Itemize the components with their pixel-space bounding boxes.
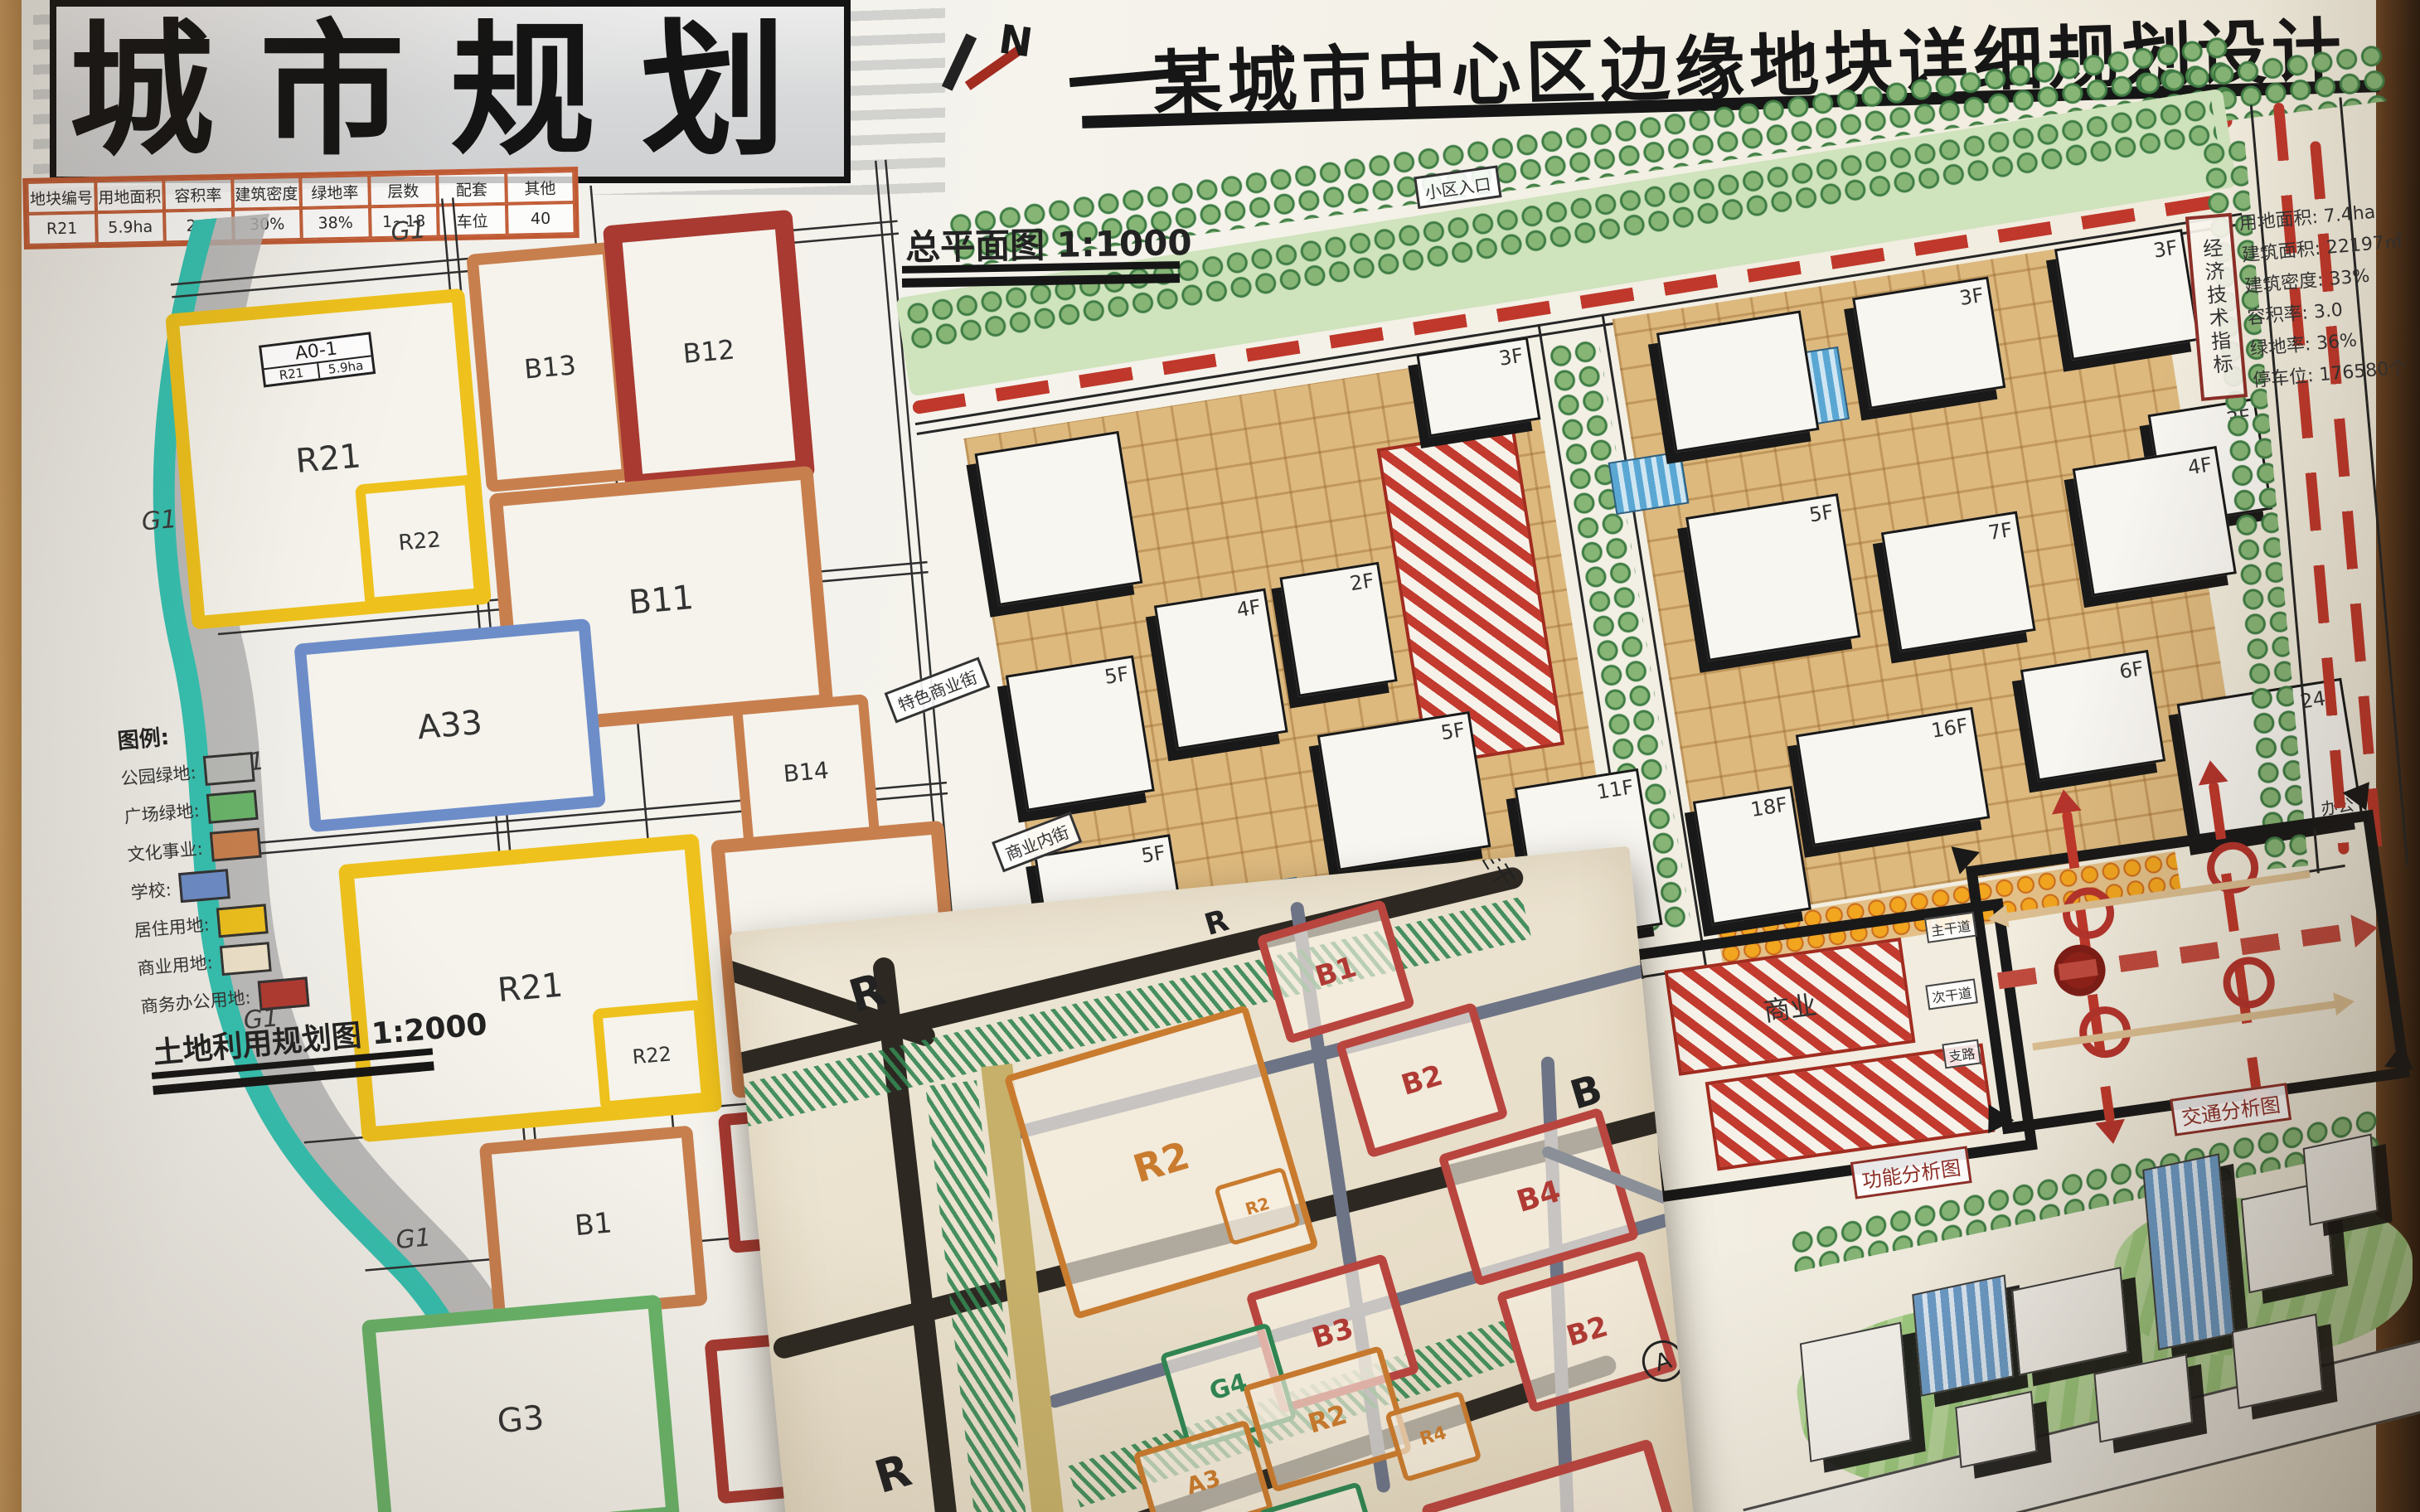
legend-item: 商务办公用地: xyxy=(139,976,319,1021)
plot-label: B2 xyxy=(1398,1059,1447,1102)
legend-swatch xyxy=(206,790,259,824)
stat-value: 22197㎡ xyxy=(2325,231,2403,259)
legend-swatch xyxy=(220,942,272,976)
plot-label: B3 xyxy=(1308,1311,1357,1354)
stats-panel: 经济技术指标 用地面积: 7.4ha 建筑面积: 22197㎡ 建筑密度: 33… xyxy=(2185,190,2418,464)
g1-label: G1 xyxy=(140,505,177,537)
floor-label: 3F xyxy=(1497,344,1525,371)
stats-title: 经济技术指标 xyxy=(2196,236,2238,377)
overlay-content: R2 R2 B1 B2 B4 B3 G4 R2 A3 R4 G5 B2 B1 B… xyxy=(730,846,1709,1512)
arrowhead-icon xyxy=(2049,787,2082,815)
stat-label: 用地面积: xyxy=(2238,207,2319,235)
stat-value: 7.4ha xyxy=(2323,202,2376,227)
legend-item: 商业用地: xyxy=(136,938,316,983)
plot-label: B1 xyxy=(574,1206,613,1243)
plot-R22b: R22 xyxy=(592,1000,711,1112)
plot-G3: G3 xyxy=(361,1295,680,1512)
legend-item: 学校: xyxy=(129,862,309,908)
g1-label: G1 xyxy=(390,215,427,247)
floor-label: 6F xyxy=(2117,657,2145,683)
floor-label: 5F xyxy=(1140,841,1167,867)
g1-label: G1 xyxy=(395,1223,432,1255)
building-block: 7F xyxy=(1881,511,2036,652)
stat-label: 停车位: xyxy=(2252,366,2314,391)
plot-label: R4 xyxy=(1418,1422,1449,1450)
plot-label: B4 xyxy=(1513,1175,1564,1219)
road-letter: B xyxy=(1565,1066,1608,1119)
table-header: 建筑密度 xyxy=(232,177,301,210)
legend-label: 广场绿地: xyxy=(123,797,200,829)
floor-label: 3F xyxy=(2151,236,2179,263)
axon-building xyxy=(2093,1354,2193,1443)
building-block: 6F xyxy=(2020,650,2165,782)
overlay-sketch-photo: R2 R2 B1 B2 B4 B3 G4 R2 A3 R4 G5 B2 B1 B… xyxy=(730,846,1709,1512)
stat-label: 建筑密度: xyxy=(2243,269,2324,297)
legend-swatch xyxy=(203,752,255,786)
table-header: 绿地率 xyxy=(300,175,369,208)
legend-item: 广场绿地: xyxy=(123,786,303,831)
plot-label: B2 xyxy=(1563,1310,1612,1353)
plot-A33: A33 xyxy=(293,618,606,832)
stat-label: 绿地率: xyxy=(2249,334,2311,360)
axon-tower-glass xyxy=(2142,1153,2235,1350)
sketch-plot: B2 xyxy=(1496,1250,1679,1413)
planning-board-photo: 城市规划 地块编号 用地面积 容积率 建筑密度 绿地率 层数 配套 其他 R21… xyxy=(0,0,2420,1512)
road-level-label: 支路 xyxy=(1942,1039,1981,1069)
arrowhead-icon xyxy=(1986,904,2010,930)
legend-label: 公园绿地: xyxy=(119,759,196,791)
plot-label: B11 xyxy=(627,579,695,623)
stats-list: 用地面积: 7.4ha 建筑面积: 22197㎡ 建筑密度: 33% 容积率: … xyxy=(2238,190,2416,397)
building-block: 5F xyxy=(1317,711,1491,871)
floor-label: 5F xyxy=(1439,718,1467,744)
plot-B12: B12 xyxy=(603,210,815,494)
plot-label: B1 xyxy=(1312,950,1360,993)
legend-label: 商业用地: xyxy=(136,949,213,981)
floor-label: 2F xyxy=(1348,569,1375,595)
legend-label: 学校: xyxy=(129,876,172,904)
axon-building xyxy=(2011,1267,2128,1376)
axon-building xyxy=(2303,1133,2379,1225)
sketch-plot: B1 xyxy=(1256,899,1415,1044)
table-header: 容积率 xyxy=(163,178,232,211)
plot-label: R22 xyxy=(397,527,442,555)
plot-label: R21 xyxy=(496,966,564,1010)
plot-label: R2 xyxy=(1304,1398,1351,1440)
axon-building xyxy=(2232,1314,2324,1409)
axon-sketch xyxy=(1766,1173,2420,1512)
floor-label: 18F xyxy=(1749,792,1789,821)
legend-swatch xyxy=(216,904,269,938)
plot-R22: R22 xyxy=(355,474,484,608)
stat-value: 3.0 xyxy=(2313,300,2344,323)
stat-value: 36% xyxy=(2316,330,2358,354)
plot-label: R22 xyxy=(632,1042,672,1069)
sketch-plot: B2 xyxy=(1336,1002,1509,1159)
plot-label: R21 xyxy=(294,437,362,481)
stat-value: 176580个 xyxy=(2318,357,2408,385)
art-title-block: 城市规划 xyxy=(50,0,851,183)
table-header: 用地面积 xyxy=(95,179,164,212)
legend-label: 商务办公用地: xyxy=(139,984,251,1018)
plot-label: B13 xyxy=(523,349,578,385)
legend-swatch xyxy=(178,869,230,903)
plot-label: R2 xyxy=(1243,1194,1272,1219)
axon-buildings xyxy=(1791,1119,2403,1512)
plot-B14: B14 xyxy=(732,694,880,850)
building-block: 5F xyxy=(1685,493,1860,661)
plot-label: B12 xyxy=(681,333,736,369)
legend-label: 居住用地: xyxy=(133,911,210,943)
building-block: 3F xyxy=(1416,337,1540,437)
arrowhead-icon xyxy=(2195,758,2228,786)
floor-label: 7F xyxy=(1986,518,2014,545)
legend-item: 文化事业: xyxy=(126,824,306,870)
traffic-diagram: 主干道 次干道 支路 交通分析图 xyxy=(1926,756,2420,1175)
plot-label: A33 xyxy=(416,704,484,748)
arrowhead-icon xyxy=(2333,990,2356,1015)
legend: 图例: 公园绿地: 广场绿地: 文化事业: 学校: 居住用地: 商业用地: 商务… xyxy=(116,709,320,1029)
building-block: 4F xyxy=(1154,589,1288,750)
floor-label: 4F xyxy=(1235,595,1263,622)
building-block: 4F xyxy=(2073,446,2237,597)
building-block: 3F xyxy=(1852,276,2005,409)
floor-label: 3F xyxy=(1958,283,1986,310)
north-label: N xyxy=(996,16,1035,66)
axon-building xyxy=(1955,1391,2037,1468)
plot-B1b: B1 xyxy=(479,1125,708,1324)
building-block: 3F xyxy=(2054,229,2199,361)
plot-label: B14 xyxy=(782,756,830,787)
legend-item: 居住用地: xyxy=(133,900,313,946)
legend-swatch xyxy=(210,828,262,862)
stat-label: 建筑面积: xyxy=(2241,239,2321,266)
arrowhead-icon xyxy=(2095,1119,2128,1146)
arrowhead-icon xyxy=(2342,773,2381,811)
road-letter: R xyxy=(869,1444,917,1504)
building-block xyxy=(974,431,1142,606)
zone-label: 商业 xyxy=(1761,984,1819,1029)
building-block: 2F xyxy=(1279,562,1397,697)
floor-label: 11F xyxy=(1595,775,1635,804)
plot-label: R2 xyxy=(1128,1132,1195,1191)
stat-value: 33% xyxy=(2328,266,2370,290)
floor-label: 5F xyxy=(1103,662,1130,689)
stat-label: 容积率: xyxy=(2247,303,2309,328)
axon-building xyxy=(1800,1322,1912,1462)
table-header: 地块编号 xyxy=(27,181,95,214)
building-block xyxy=(1656,310,1820,453)
legend-label: 文化事业: xyxy=(126,836,203,867)
arrowhead-icon xyxy=(2350,911,2379,947)
floor-label: 5F xyxy=(1807,500,1835,526)
art-title-text: 城市规划 xyxy=(69,19,832,164)
axon-building-glass xyxy=(1912,1275,2014,1397)
road-letter: R xyxy=(1200,904,1232,943)
legend-item: 公园绿地: xyxy=(119,748,299,793)
plot-label: A3 xyxy=(1183,1464,1224,1500)
plot-label: G3 xyxy=(496,1398,546,1441)
building-block: 5F xyxy=(1006,655,1155,811)
legend-swatch xyxy=(258,976,310,1010)
floor-label: 16F xyxy=(1930,714,1970,743)
